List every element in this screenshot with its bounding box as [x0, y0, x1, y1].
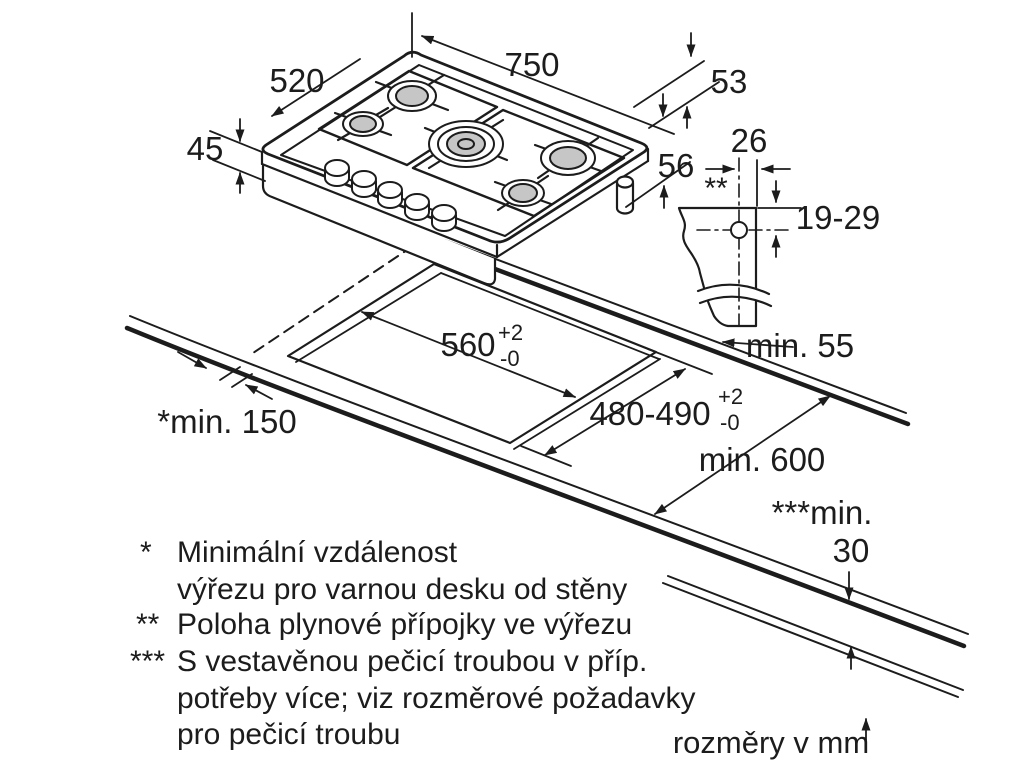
dim-arrow-min150-b	[246, 385, 272, 399]
footnote-3-line-1: S vestavěnou pečicí troubou v příp.	[177, 645, 647, 678]
footnote-2-marker: **	[136, 608, 160, 641]
dim-label-520: 520	[269, 62, 324, 99]
gas-connection-detail	[679, 158, 801, 326]
dim-label-480-tol-minus: -0	[720, 410, 740, 435]
oven-shelf-top-line	[668, 576, 963, 690]
footnote-1-marker: *	[140, 536, 152, 569]
burner-right	[541, 141, 595, 175]
footnote-3-line-2: potřeby více; viz rozměrové požadavky	[177, 682, 696, 715]
footnote-3-marker: ***	[130, 645, 165, 678]
dim-label-53: 53	[711, 63, 748, 100]
dim-tick-480-lower	[521, 446, 571, 466]
dim-label-min600: min. 600	[699, 441, 826, 478]
dim-label-750: 750	[504, 46, 559, 83]
dim-label-56: 56	[658, 147, 695, 184]
cutout-inner-wall-left	[296, 273, 441, 362]
projection-dashed-line	[250, 236, 428, 355]
footnote-1-line-2: výřezu pro varnou desku od stěny	[177, 573, 627, 606]
burner-mid-left	[343, 112, 383, 136]
footnote-2-line-1: Poloha plynové přípojky ve výřezu	[177, 608, 632, 641]
gas-inlet-hole	[731, 222, 747, 238]
dim-label-min30-value: 30	[833, 532, 870, 569]
burner-back-left	[388, 81, 436, 111]
hob-installation-diagram: 520 750 45 53 56 26 ** 19-29 min. 55 560…	[0, 0, 1024, 768]
footnotes: * Minimální vzdálenost výřezu pro varnou…	[130, 536, 696, 751]
dim-label-480-tol-plus: +2	[718, 384, 743, 409]
dim-label-560: 560	[440, 326, 495, 363]
dim-label-min55: min. 55	[746, 327, 854, 364]
dim-tick-53-upper	[634, 61, 704, 107]
oven-shelf-bottom-line	[663, 583, 958, 697]
dim-label-26: 26	[731, 122, 768, 159]
units-note: rozměry v mm	[673, 725, 869, 760]
installation-diagram-page: 520 750 45 53 56 26 ** 19-29 min. 55 560…	[0, 0, 1024, 768]
dim-tick-53-lower	[649, 82, 719, 128]
dim-label-45: 45	[187, 130, 224, 167]
dim-label-560-tol-minus: -0	[500, 346, 520, 371]
footnote-1-line-1: Minimální vzdálenost	[177, 536, 458, 569]
dim-label-min150: *min. 150	[157, 403, 296, 440]
gas-pipe	[617, 177, 633, 214]
burner-front-center	[502, 180, 544, 206]
dim-label-min30-prefix: ***min.	[772, 494, 873, 531]
gas-detail-marker: **	[704, 172, 728, 205]
burner-center-wok	[429, 121, 503, 167]
dim-label-480-490: 480-490	[589, 395, 710, 432]
dim-label-560-tol-plus: +2	[498, 320, 523, 345]
dim-label-19-29: 19-29	[796, 199, 880, 236]
footnote-3-line-3: pro pečicí troubu	[177, 718, 400, 751]
